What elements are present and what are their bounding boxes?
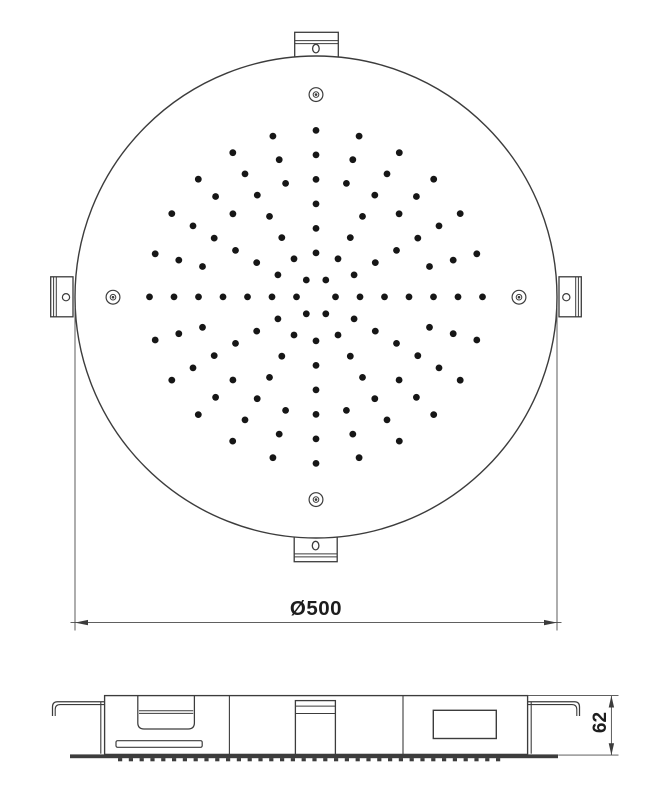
nozzle-dot bbox=[212, 193, 219, 200]
nozzle-dot bbox=[313, 201, 320, 208]
nozzle-outlet bbox=[420, 758, 424, 761]
technical-drawing-canvas: Ø500 bbox=[0, 0, 661, 800]
nozzle-dot bbox=[455, 294, 462, 301]
nozzle-dot bbox=[195, 294, 202, 301]
nozzle-outlet bbox=[150, 758, 154, 761]
nozzle-dot bbox=[175, 330, 182, 337]
nozzle-dot bbox=[479, 294, 486, 301]
nozzle-dot bbox=[254, 395, 261, 402]
tab-screw-hole bbox=[313, 44, 320, 53]
nozzle-dot bbox=[313, 225, 320, 232]
nozzle-outlet bbox=[377, 758, 381, 761]
nozzle-dot bbox=[473, 250, 480, 257]
nozzle-dot bbox=[232, 247, 239, 254]
nozzle-dot bbox=[473, 337, 480, 344]
inlet-block bbox=[295, 701, 335, 755]
nozzle-dot bbox=[436, 223, 443, 230]
nozzle-dot bbox=[152, 337, 159, 344]
nozzle-dot bbox=[244, 294, 251, 301]
nozzle-outlet bbox=[172, 758, 176, 761]
nozzle-dot bbox=[199, 324, 206, 331]
nozzle-dot bbox=[175, 257, 182, 264]
screw-hole-left bbox=[106, 290, 120, 304]
tab-screw-hole bbox=[312, 541, 319, 550]
nozzle-outlet bbox=[442, 758, 446, 761]
nozzle-outlet bbox=[474, 758, 478, 761]
nozzle-outlet bbox=[248, 758, 252, 761]
hook-inner-edge bbox=[55, 705, 104, 716]
nozzle-dot bbox=[220, 294, 227, 301]
nozzle-dot bbox=[293, 294, 300, 301]
nozzle-dot bbox=[335, 332, 342, 339]
mounting-tab-bottom bbox=[294, 536, 337, 562]
nozzle-dot bbox=[396, 210, 403, 217]
mounting-tab-right bbox=[559, 277, 581, 317]
nozzle-dot bbox=[291, 255, 298, 262]
nozzle-dot bbox=[230, 377, 237, 384]
nozzle-dot bbox=[322, 310, 329, 317]
nozzle-dot bbox=[450, 257, 457, 264]
nozzle-dot bbox=[168, 210, 175, 217]
nozzle-dot bbox=[269, 294, 276, 301]
nozzle-dot bbox=[426, 324, 433, 331]
nozzle-outlet bbox=[269, 758, 273, 761]
nozzle-dot bbox=[230, 210, 237, 217]
nozzle-dot bbox=[199, 263, 206, 270]
nozzle-dot bbox=[313, 460, 320, 467]
nozzle-dot bbox=[229, 438, 236, 445]
nozzle-outlet bbox=[291, 758, 295, 761]
nozzle-dot bbox=[457, 377, 464, 384]
nozzle-dot bbox=[195, 176, 202, 183]
screw-hole-center bbox=[518, 296, 521, 299]
nozzle-dot bbox=[347, 234, 354, 241]
nozzle-dot bbox=[266, 374, 273, 381]
nozzle-outlet bbox=[453, 758, 457, 761]
nozzle-dot bbox=[303, 277, 310, 284]
nozzle-dot bbox=[168, 377, 175, 384]
nozzle-outlet-strip bbox=[118, 758, 500, 761]
nozzle-dot bbox=[212, 394, 219, 401]
nozzle-dot bbox=[313, 338, 320, 345]
nozzle-dot bbox=[322, 277, 329, 284]
nozzle-dot bbox=[275, 272, 282, 279]
nozzle-dot bbox=[313, 411, 320, 418]
nozzle-dot bbox=[190, 223, 197, 230]
hook-inner-edge bbox=[528, 705, 577, 716]
nozzle-dot bbox=[351, 272, 358, 279]
nozzle-outlet bbox=[129, 758, 133, 761]
nozzle-dot bbox=[356, 133, 363, 140]
nozzle-dot bbox=[450, 330, 457, 337]
nozzle-dot bbox=[313, 387, 320, 394]
nozzle-dot bbox=[270, 133, 277, 140]
nozzle-dot bbox=[270, 454, 277, 461]
nozzle-dot bbox=[313, 250, 320, 257]
hook-outer-edge bbox=[53, 702, 105, 716]
screw-hole-top bbox=[309, 88, 323, 102]
nozzle-outlet bbox=[431, 758, 435, 761]
nozzle-dot bbox=[313, 436, 320, 443]
nozzle-dot bbox=[372, 328, 379, 335]
nozzle-dot bbox=[313, 152, 320, 159]
nozzle-dot bbox=[430, 176, 437, 183]
side-view bbox=[53, 696, 580, 762]
nozzle-dot bbox=[349, 156, 356, 163]
nozzle-outlet bbox=[204, 758, 208, 761]
nozzle-dot bbox=[414, 235, 421, 242]
nozzle-dot bbox=[430, 294, 437, 301]
screw-hole-bottom bbox=[309, 493, 323, 507]
nozzle-dot bbox=[393, 340, 400, 347]
left-slot bbox=[116, 741, 202, 748]
nozzle-outlet bbox=[226, 758, 230, 761]
nozzle-outlet bbox=[118, 758, 122, 761]
nozzle-outlet bbox=[485, 758, 489, 761]
nozzle-dot bbox=[242, 171, 249, 178]
nozzle-dot bbox=[190, 365, 197, 372]
hook-outer-edge bbox=[528, 702, 580, 716]
nozzle-dot bbox=[211, 235, 218, 242]
nozzle-dot bbox=[171, 294, 178, 301]
nozzle-dot bbox=[371, 395, 378, 402]
nozzle-dot bbox=[393, 247, 400, 254]
nozzle-dot bbox=[381, 294, 388, 301]
diameter-label: Ø500 bbox=[290, 597, 342, 620]
nozzle-outlet bbox=[161, 758, 165, 761]
nozzle-dot bbox=[406, 294, 413, 301]
tab-screw-hole bbox=[563, 294, 570, 301]
screw-hole-right bbox=[512, 290, 526, 304]
nozzle-dot bbox=[359, 213, 366, 220]
nozzle-outlet bbox=[410, 758, 414, 761]
screw-hole-center bbox=[315, 498, 318, 501]
nozzle-dot bbox=[414, 352, 421, 359]
nozzle-dot bbox=[253, 259, 260, 266]
nozzle-dot bbox=[313, 127, 320, 134]
nozzle-outlet bbox=[345, 758, 349, 761]
nozzle-outlet bbox=[366, 758, 370, 761]
screw-hole-center bbox=[112, 296, 115, 299]
nozzle-dot bbox=[335, 255, 342, 262]
nozzle-dot bbox=[275, 316, 282, 323]
nozzle-dot bbox=[436, 365, 443, 372]
nozzle-dot bbox=[291, 332, 298, 339]
nozzle-dot bbox=[254, 192, 261, 199]
arrowhead-left bbox=[75, 620, 88, 625]
nozzle-outlet bbox=[312, 758, 316, 761]
nozzle-dot bbox=[278, 234, 285, 241]
nozzle-dot bbox=[152, 250, 159, 257]
nozzle-dot bbox=[430, 411, 437, 418]
nozzle-outlet bbox=[215, 758, 219, 761]
nozzle-dot bbox=[396, 377, 403, 384]
nozzle-dot bbox=[457, 210, 464, 217]
nozzle-dot bbox=[282, 407, 289, 414]
nozzle-dot bbox=[276, 156, 283, 163]
nozzle-outlet bbox=[237, 758, 241, 761]
nozzle-dot bbox=[266, 213, 273, 220]
nozzle-dot bbox=[349, 431, 356, 438]
nozzle-outlet bbox=[388, 758, 392, 761]
nozzle-dot bbox=[253, 328, 260, 335]
nozzle-dot bbox=[303, 310, 310, 317]
nozzle-dot bbox=[384, 417, 391, 424]
drawing-page: Ø500 bbox=[0, 0, 661, 800]
nozzle-dot bbox=[396, 149, 403, 156]
tab-screw-hole bbox=[62, 294, 69, 301]
mounting-tab-left bbox=[51, 277, 73, 317]
nozzle-dot bbox=[357, 294, 364, 301]
nozzle-dot bbox=[413, 193, 420, 200]
nozzle-dot bbox=[313, 362, 320, 369]
nozzle-outlet bbox=[194, 758, 198, 761]
nozzle-dot bbox=[372, 259, 379, 266]
arrowhead-right bbox=[544, 620, 557, 625]
nozzle-dot bbox=[229, 149, 236, 156]
nozzle-dot bbox=[356, 454, 363, 461]
nozzle-outlet bbox=[183, 758, 187, 761]
nozzle-outlet bbox=[140, 758, 144, 761]
mounting-hook-left bbox=[53, 702, 105, 754]
nozzle-dot bbox=[146, 294, 153, 301]
nozzle-dot bbox=[343, 407, 350, 414]
nozzle-outlet bbox=[399, 758, 403, 761]
mounting-tab-top bbox=[295, 32, 339, 59]
nozzle-dot bbox=[426, 263, 433, 270]
mounting-hook-right bbox=[528, 702, 580, 754]
nozzle-dot bbox=[242, 417, 249, 424]
nozzle-dot bbox=[359, 374, 366, 381]
nozzle-dot bbox=[413, 394, 420, 401]
face-view bbox=[51, 32, 582, 561]
nozzle-dot bbox=[332, 294, 339, 301]
nozzle-dot bbox=[232, 340, 239, 347]
nozzle-dot bbox=[282, 180, 289, 187]
nozzle-dot bbox=[347, 353, 354, 360]
nozzle-dot bbox=[276, 431, 283, 438]
arrowhead-down bbox=[609, 743, 614, 755]
nozzle-dot bbox=[351, 316, 358, 323]
nozzle-outlet bbox=[464, 758, 468, 761]
nozzle-outlet bbox=[356, 758, 360, 761]
nozzle-dot bbox=[384, 171, 391, 178]
nozzle-outlet bbox=[302, 758, 306, 761]
nozzle-dot bbox=[313, 176, 320, 183]
nozzle-outlet bbox=[258, 758, 262, 761]
nozzle-outlet bbox=[496, 758, 500, 761]
nozzle-outlet bbox=[323, 758, 327, 761]
nozzle-outlet bbox=[280, 758, 284, 761]
nozzle-outlet bbox=[334, 758, 338, 761]
arrowhead-up bbox=[609, 696, 614, 708]
nozzle-dot bbox=[195, 411, 202, 418]
nozzle-dot bbox=[371, 192, 378, 199]
nozzle-dot bbox=[278, 353, 285, 360]
screw-hole-center bbox=[315, 93, 318, 96]
nozzle-dot bbox=[211, 352, 218, 359]
nozzle-dot bbox=[343, 180, 350, 187]
height-label: 62 bbox=[590, 712, 611, 733]
nozzle-dot bbox=[396, 438, 403, 445]
